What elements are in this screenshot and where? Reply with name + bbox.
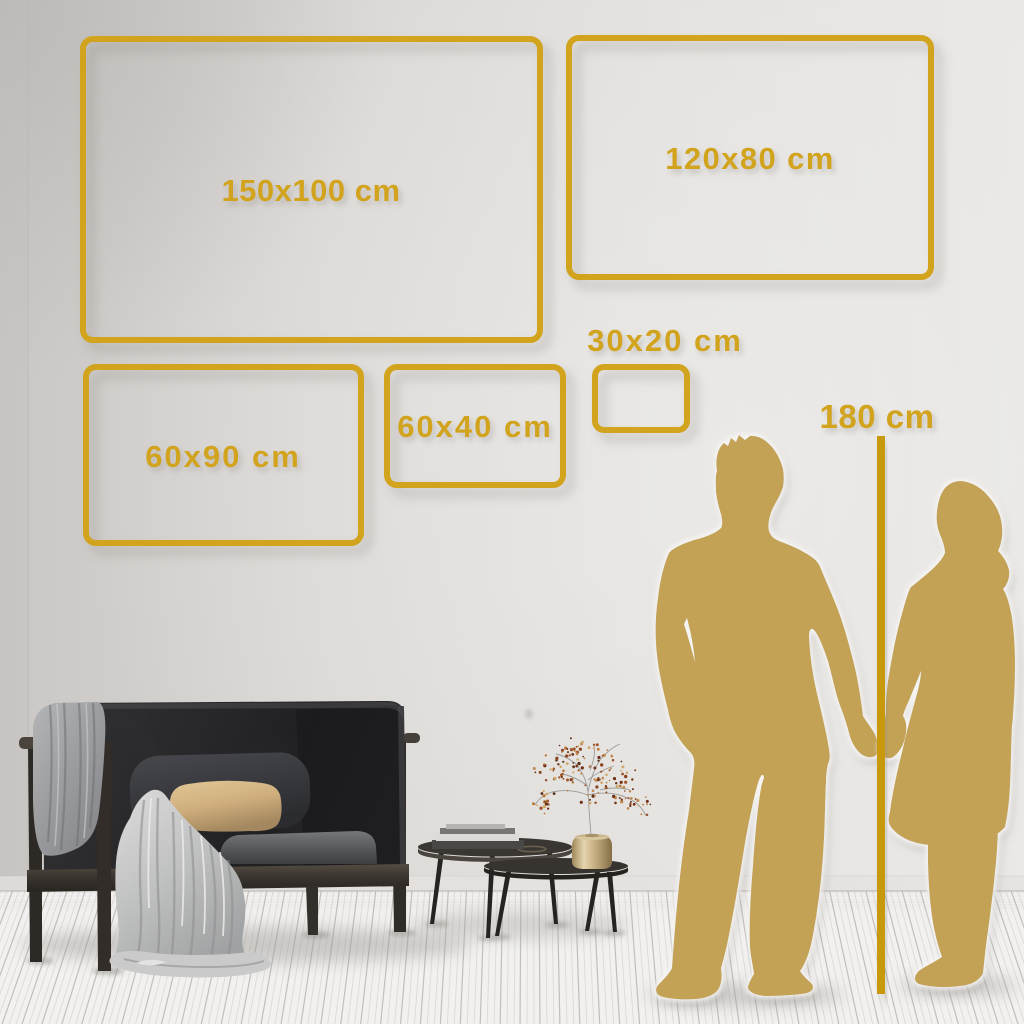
svg-text:150x100 cm: 150x100 cm (221, 173, 400, 208)
svg-text:180 cm: 180 cm (820, 398, 935, 435)
svg-text:60x90 cm: 60x90 cm (145, 439, 301, 474)
svg-text:30x20 cm: 30x20 cm (587, 323, 743, 358)
svg-text:60x40 cm: 60x40 cm (397, 409, 553, 444)
svg-text:120x80 cm: 120x80 cm (665, 141, 834, 176)
